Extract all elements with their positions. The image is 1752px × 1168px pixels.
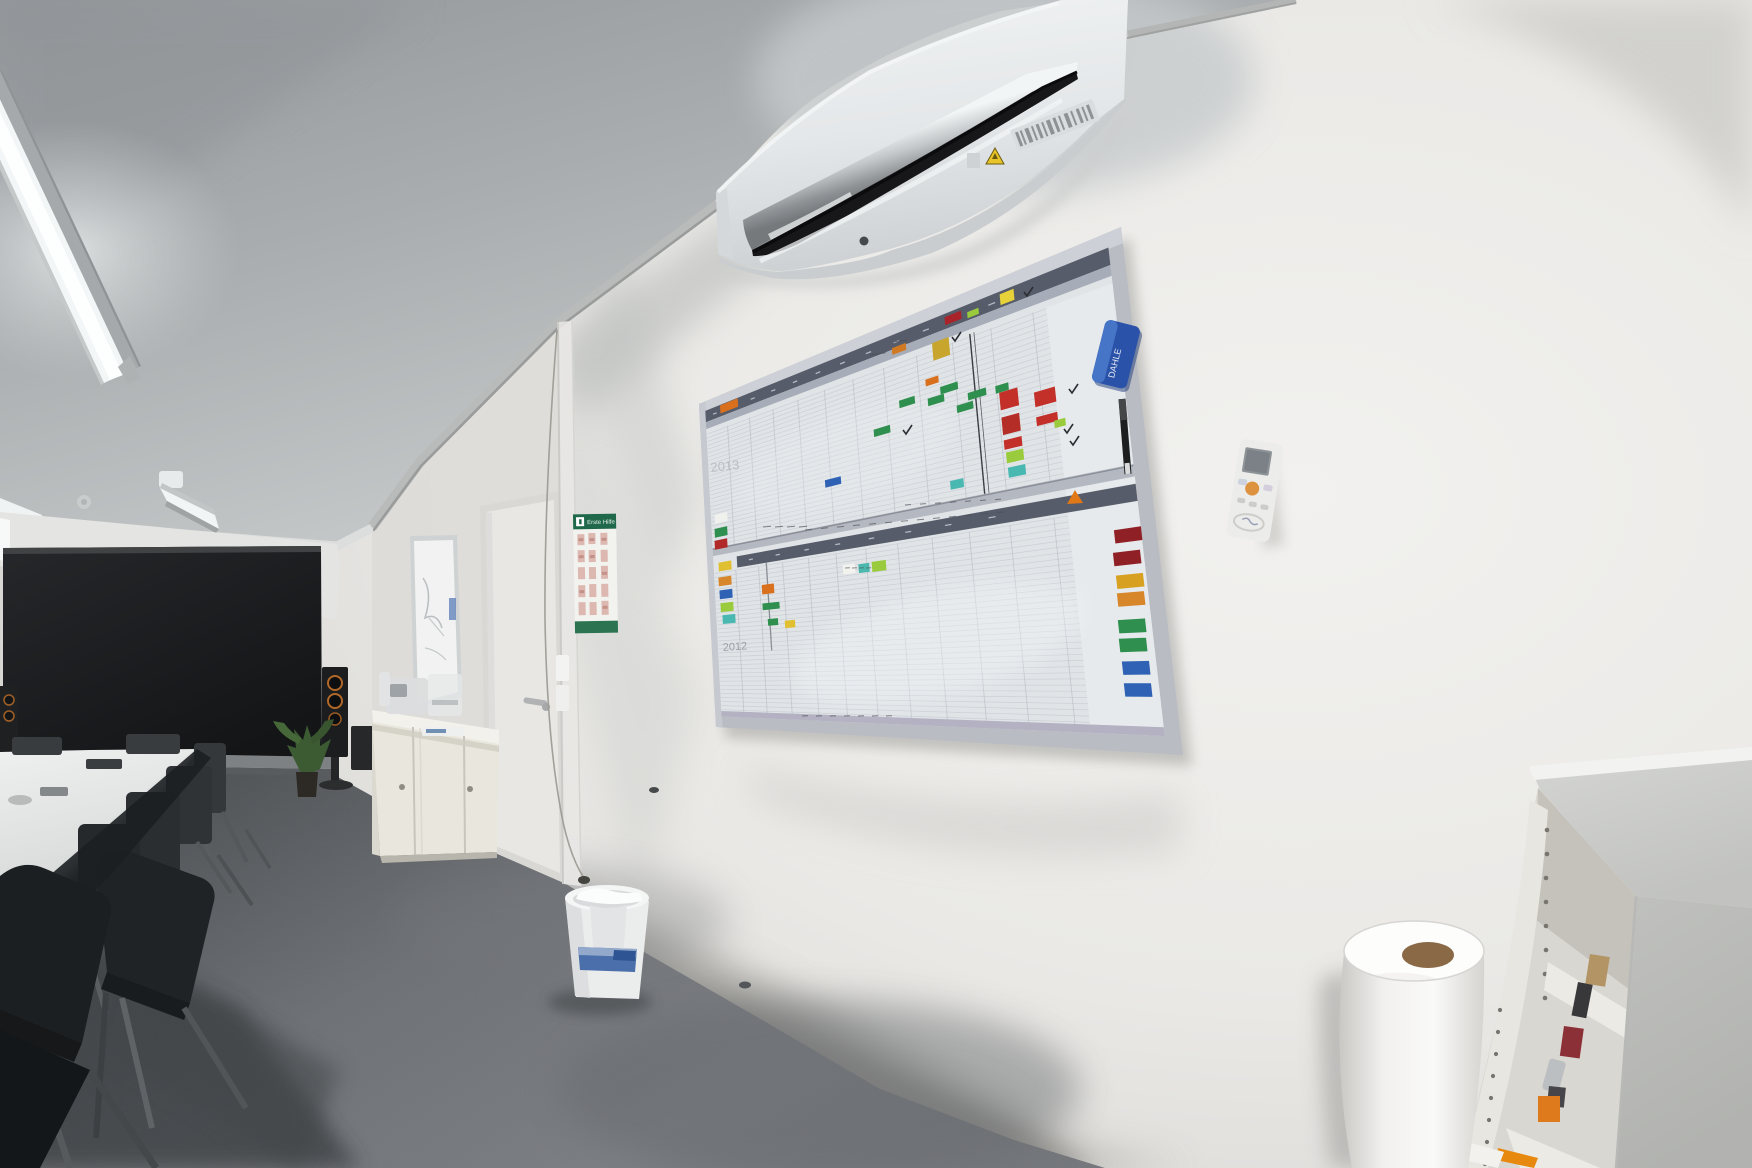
svg-text:Erste Hilfe: Erste Hilfe xyxy=(587,520,615,526)
svg-text:2013: 2013 xyxy=(710,457,740,475)
svg-text:2012: 2012 xyxy=(722,640,747,654)
